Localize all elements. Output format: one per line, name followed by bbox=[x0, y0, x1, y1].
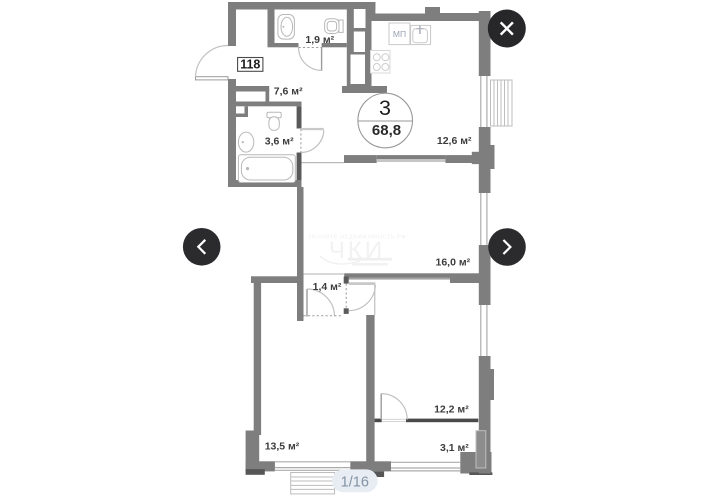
svg-text:1/16: 1/16 bbox=[341, 475, 369, 491]
svg-text:12,6 м²: 12,6 м² bbox=[437, 135, 472, 147]
svg-text:12,2 м²: 12,2 м² bbox=[434, 404, 469, 416]
svg-text:3,6 м²: 3,6 м² bbox=[265, 136, 294, 148]
svg-text:13,5 м²: 13,5 м² bbox=[265, 440, 300, 452]
svg-text:1,4 м²: 1,4 м² bbox=[313, 281, 342, 293]
svg-text:1,9 м²: 1,9 м² bbox=[305, 34, 334, 46]
svg-text:3,1 м²: 3,1 м² bbox=[440, 442, 469, 454]
svg-text:3: 3 bbox=[379, 96, 391, 120]
svg-text:16,0 м²: 16,0 м² bbox=[435, 256, 470, 268]
svg-text:МП: МП bbox=[393, 29, 406, 39]
svg-text:68,8: 68,8 bbox=[372, 122, 401, 139]
svg-text:118: 118 bbox=[240, 58, 260, 72]
svg-text:7,6 м²: 7,6 м² bbox=[274, 86, 303, 98]
